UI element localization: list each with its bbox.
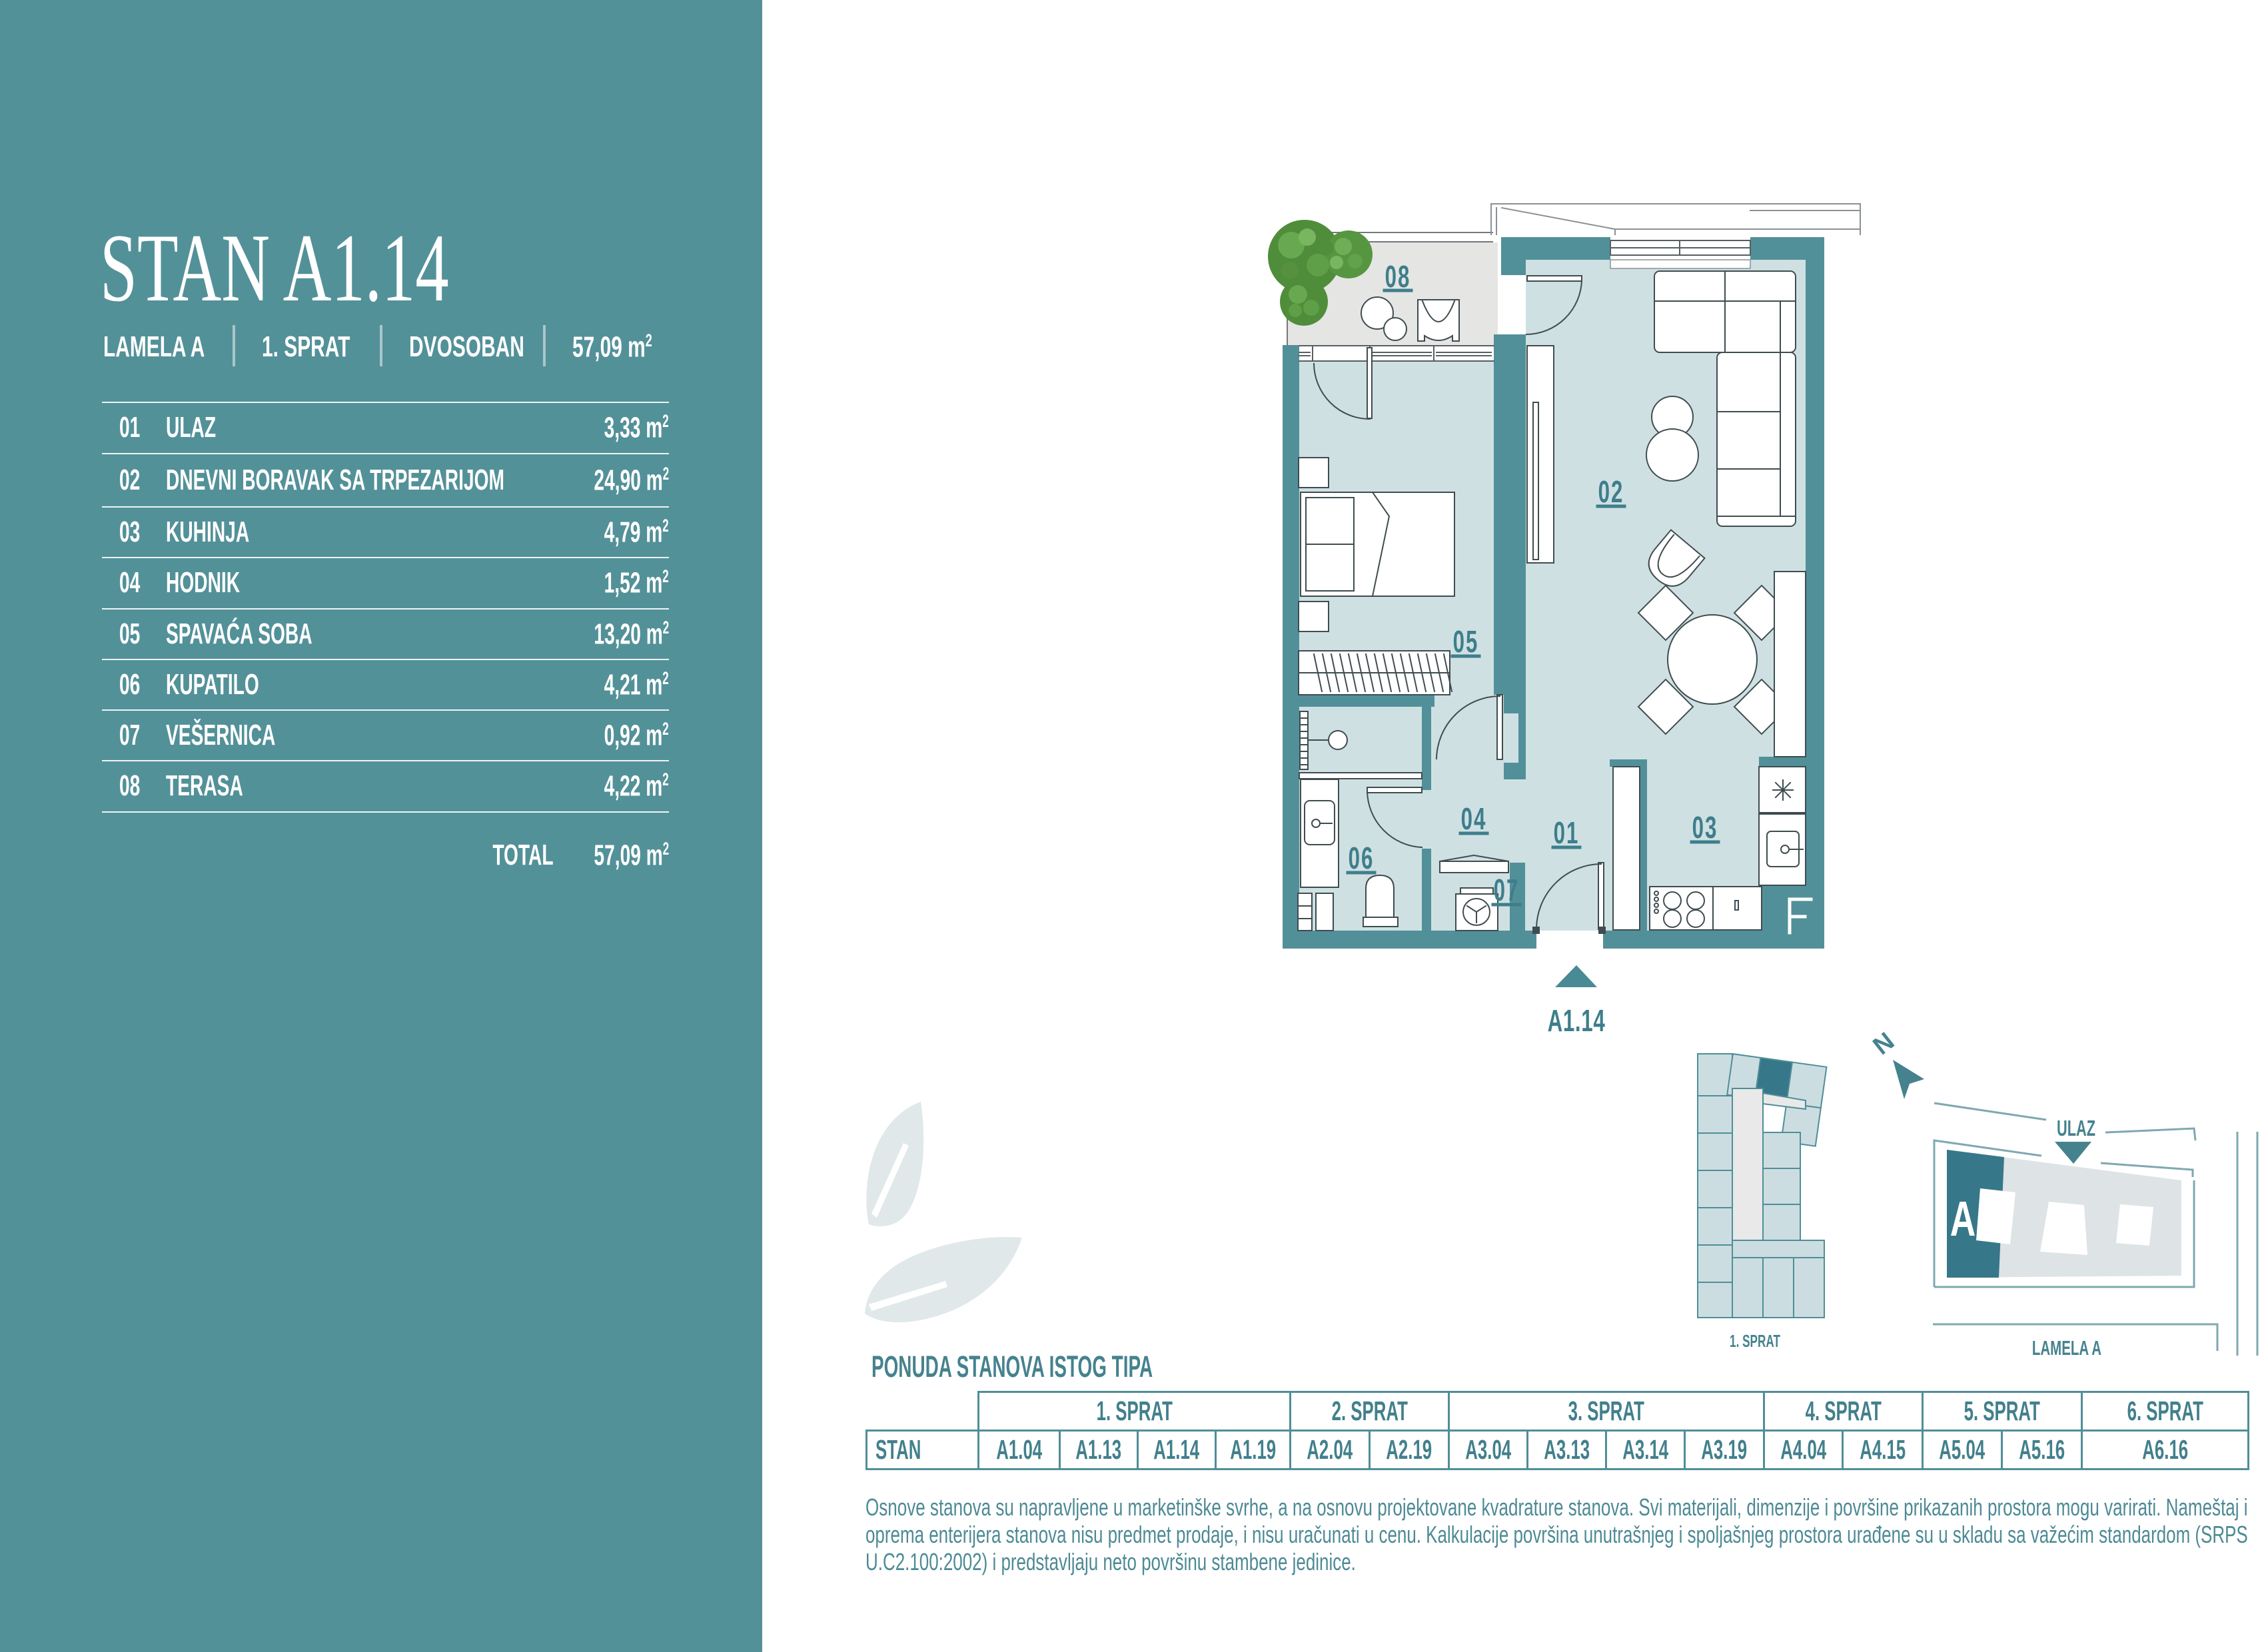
svg-text:ULAZ: ULAZ — [2057, 1116, 2095, 1140]
svg-text:07: 07 — [1494, 873, 1520, 907]
svg-text:05: 05 — [1453, 625, 1479, 659]
svg-text:LAMELA A: LAMELA A — [2032, 1336, 2101, 1360]
svg-text:02: 02 — [1598, 475, 1624, 509]
svg-text:A1.14: A1.14 — [1548, 1004, 1606, 1038]
svg-text:03: 03 — [1692, 811, 1718, 845]
svg-text:06: 06 — [1349, 841, 1375, 875]
svg-text:A: A — [1950, 1191, 1976, 1246]
svg-text:01: 01 — [1554, 816, 1580, 850]
svg-text:04: 04 — [1461, 802, 1487, 836]
svg-text:N: N — [1868, 1027, 1900, 1060]
svg-text:1. SPRAT: 1. SPRAT — [1730, 1331, 1780, 1351]
